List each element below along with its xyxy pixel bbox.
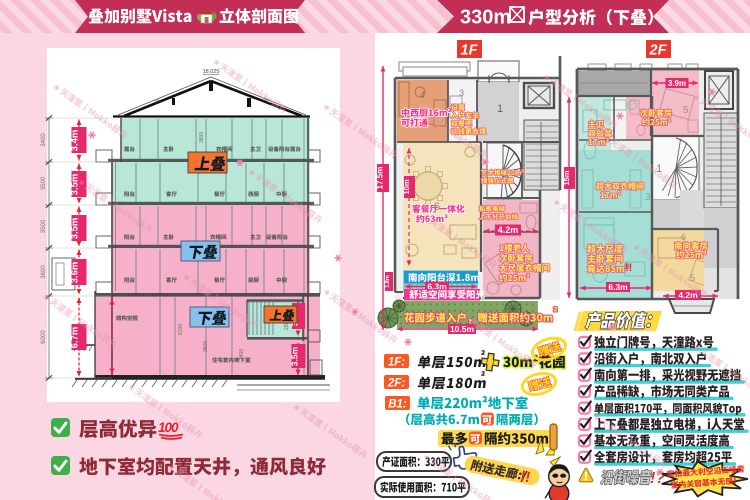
- svg-text:10m: 10m: [402, 179, 411, 194]
- svg-text:10.5m: 10.5m: [450, 324, 475, 334]
- svg-text:5: 5: [683, 105, 689, 116]
- svg-text:6: 6: [681, 232, 686, 242]
- svg-text:2F: 2F: [649, 43, 668, 59]
- svg-text:B1:: B1:: [388, 399, 407, 411]
- svg-text:6700: 6700: [178, 324, 184, 335]
- svg-text:330m: 330m: [460, 7, 511, 29]
- svg-text:3: 3: [645, 192, 651, 203]
- svg-text:1F: 1F: [461, 43, 479, 59]
- svg-text:2F:: 2F:: [387, 378, 405, 390]
- svg-text:6000: 6000: [41, 330, 47, 344]
- svg-text:3400: 3400: [41, 133, 47, 147]
- svg-text:1: 1: [497, 103, 503, 115]
- svg-text:3500: 3500: [41, 176, 47, 190]
- svg-text:2400: 2400: [239, 349, 245, 360]
- svg-text:3600: 3600: [199, 132, 205, 143]
- svg-text:3.5m: 3.5m: [70, 218, 81, 240]
- svg-text:6: 6: [434, 201, 440, 213]
- svg-text:1.8m: 1.8m: [385, 275, 391, 288]
- svg-text:6.3m: 6.3m: [608, 282, 628, 292]
- svg-text:3500: 3500: [41, 219, 47, 233]
- svg-text:3600: 3600: [203, 341, 209, 352]
- svg-text:3.6m: 3.6m: [70, 262, 81, 284]
- svg-text:6.7m: 6.7m: [70, 327, 81, 349]
- svg-text:100: 100: [158, 420, 179, 435]
- svg-text:5: 5: [690, 273, 695, 283]
- svg-text:3600: 3600: [41, 265, 47, 279]
- svg-text:3.5m: 3.5m: [70, 174, 81, 196]
- svg-text:3.9m: 3.9m: [668, 79, 686, 88]
- svg-text:3.4m: 3.4m: [70, 130, 81, 152]
- svg-text:!!: !!: [625, 262, 632, 274]
- svg-text:15m: 15m: [562, 170, 571, 185]
- svg-text:18.025: 18.025: [203, 69, 220, 75]
- svg-text:3.5m: 3.5m: [290, 346, 300, 366]
- svg-text:3: 3: [459, 88, 464, 98]
- svg-text:4: 4: [420, 90, 425, 100]
- svg-text:17.5m: 17.5m: [376, 167, 385, 190]
- svg-text:4.2m: 4.2m: [498, 225, 519, 235]
- svg-text:1F:: 1F:: [388, 357, 405, 369]
